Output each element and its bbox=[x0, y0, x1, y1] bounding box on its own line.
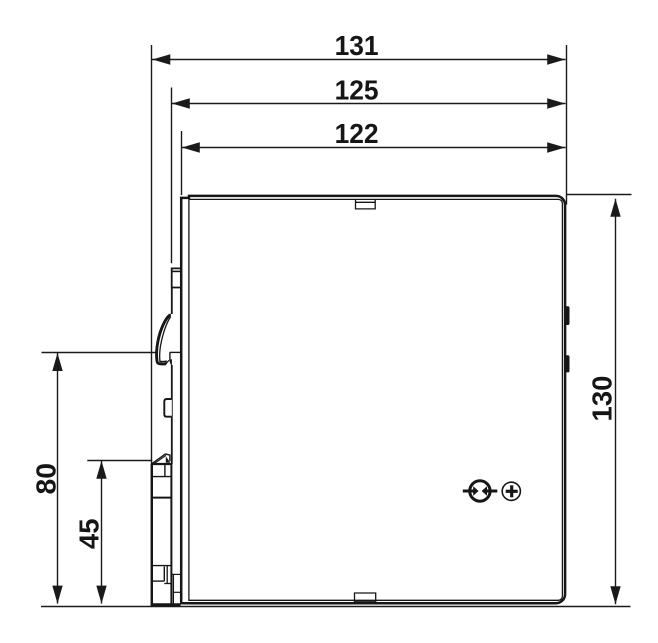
svg-text:80: 80 bbox=[30, 463, 61, 495]
svg-text:130: 130 bbox=[586, 376, 617, 422]
svg-text:122: 122 bbox=[335, 118, 379, 149]
svg-text:131: 131 bbox=[335, 30, 379, 61]
svg-text:45: 45 bbox=[74, 519, 105, 549]
svg-text:125: 125 bbox=[335, 74, 379, 105]
